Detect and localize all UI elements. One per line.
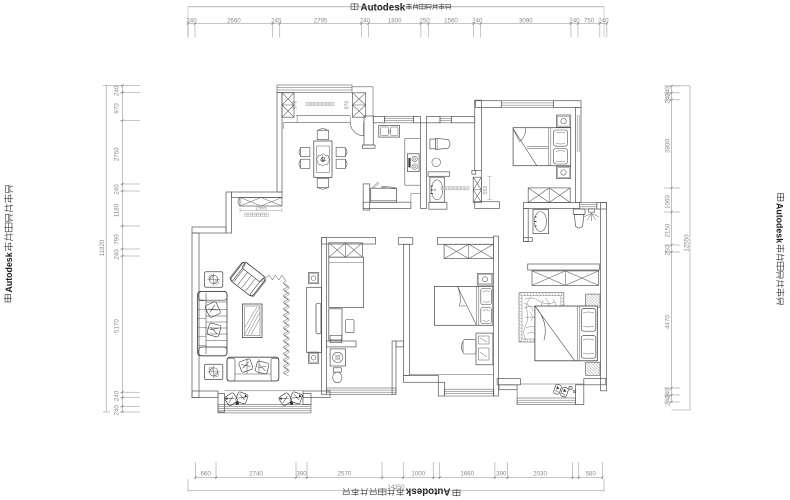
svg-text:250: 250: [419, 17, 430, 24]
svg-text:390: 390: [296, 470, 307, 477]
svg-text:250: 250: [665, 245, 672, 256]
svg-text:Autodesk: Autodesk: [405, 486, 450, 497]
svg-text:2150: 2150: [665, 223, 672, 237]
svg-text:1800: 1800: [388, 17, 402, 24]
svg-text:390: 390: [496, 470, 507, 477]
svg-text:11820: 11820: [99, 239, 106, 256]
svg-text:2795: 2795: [314, 17, 328, 24]
svg-text:1660: 1660: [460, 470, 474, 477]
svg-text:2570: 2570: [338, 470, 352, 477]
svg-text:3090: 3090: [519, 17, 533, 24]
svg-text:1060: 1060: [665, 195, 672, 209]
svg-text:Autodesk: Autodesk: [4, 252, 14, 292]
svg-text:1180: 1180: [114, 203, 121, 217]
svg-text:14350: 14350: [387, 484, 405, 491]
svg-text:240: 240: [114, 184, 121, 195]
svg-text:3800: 3800: [665, 139, 672, 153]
svg-text:240: 240: [665, 93, 672, 104]
svg-text:5170: 5170: [114, 319, 121, 333]
svg-text:1560: 1560: [444, 17, 458, 24]
svg-text:240: 240: [114, 390, 121, 401]
svg-text:2740: 2740: [249, 470, 263, 477]
svg-text:660: 660: [200, 470, 211, 477]
svg-text:Autodesk: Autodesk: [775, 203, 785, 243]
svg-text:240: 240: [472, 17, 483, 24]
svg-text:970: 970: [293, 101, 299, 110]
svg-text:1000: 1000: [411, 470, 425, 477]
svg-text:240: 240: [114, 85, 121, 96]
svg-text:970: 970: [345, 101, 351, 110]
svg-text:2030: 2030: [533, 470, 547, 477]
svg-text:2660: 2660: [227, 17, 241, 24]
svg-text:240: 240: [114, 249, 121, 260]
svg-text:4470: 4470: [665, 315, 672, 329]
svg-text:970: 970: [114, 103, 121, 114]
svg-text:240: 240: [114, 405, 121, 416]
svg-text:240: 240: [360, 17, 371, 24]
svg-text:750: 750: [584, 17, 595, 24]
svg-text:240: 240: [569, 17, 580, 24]
svg-text:1565: 1565: [255, 206, 267, 212]
svg-text:245: 245: [271, 17, 282, 24]
svg-text:Autodesk: Autodesk: [361, 3, 406, 14]
svg-text:790: 790: [114, 234, 121, 245]
svg-text:12550: 12550: [684, 234, 691, 252]
svg-text:2750: 2750: [114, 147, 121, 161]
svg-text:240: 240: [598, 17, 609, 24]
svg-text:580: 580: [585, 470, 596, 477]
svg-text:240: 240: [665, 395, 672, 406]
svg-text:500: 500: [483, 186, 489, 195]
